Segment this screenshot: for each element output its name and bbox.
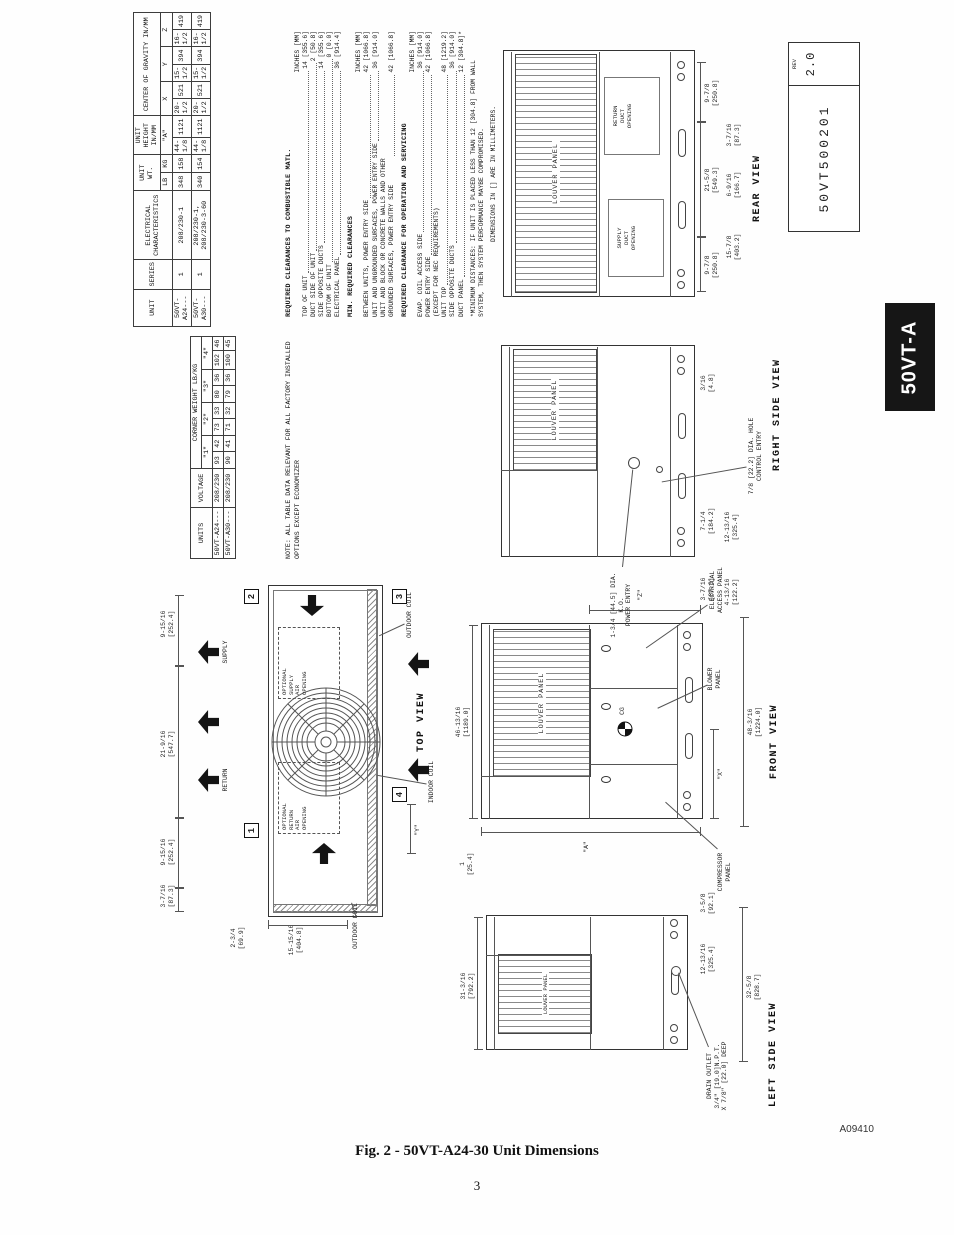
louver-panel-label: LOUVER PANEL (538, 670, 546, 737)
louver-panel: LOUVER PANEL (513, 349, 597, 471)
clearance-item: (EXCEPT FOR NEC REQUIREMENTS) (433, 31, 441, 317)
control-entry-hole (656, 466, 663, 473)
return-label: RETURN (222, 754, 230, 806)
dimension-label: 15-7/8 [403.2] (726, 225, 741, 269)
dimension-label: 21-5/8 [549.3] (704, 157, 719, 203)
top-cap-line (494, 917, 495, 1050)
mounting-hole (677, 355, 685, 363)
cell: 340 (191, 173, 210, 191)
col-a: "A" (161, 116, 172, 155)
dimension-a-label: "A" (583, 837, 591, 857)
cell: 50VT-A30--- (224, 508, 235, 559)
dimension-label: 6-9/16 [166.7] (726, 163, 741, 207)
title-block: 50VT500201 REV 2.0 (788, 42, 860, 232)
indoor-coil-label: INDOOR COIL (428, 750, 436, 814)
col-corner-weight: CORNER WEIGHT LB/KG (191, 337, 202, 469)
dot-leader (447, 75, 448, 285)
clearance-item: BOTTOM OF UNIT0 [0.0] (326, 31, 334, 317)
mounting-slot (685, 677, 693, 703)
dimension-label: 15-15/16 [404.8] (288, 914, 303, 966)
mounting-slot (678, 201, 686, 229)
clearance-item: UNIT AND BLOCK OR CONCRETE WALLS AND OTH… (380, 31, 396, 317)
panel-seam (486, 955, 590, 956)
louver-panel-label: LOUVER PANEL (552, 140, 560, 207)
col-c3: "3" (202, 370, 213, 403)
cell: 79 (224, 386, 235, 403)
louver-panel: LOUVER PANEL (515, 54, 597, 293)
airflow-arrow (198, 710, 219, 734)
dot-leader (316, 63, 317, 251)
outdoor-coil-hatch (273, 904, 378, 913)
cell: 71 (224, 419, 235, 436)
mounting-slot (685, 733, 693, 759)
view-title: RIGHT SIDE VIEW (772, 358, 783, 471)
cell: 158 (172, 155, 191, 173)
dimension-line (743, 617, 744, 827)
dimension-label: 7-1/4 [184.2] (700, 501, 715, 541)
mounting-hole (677, 269, 685, 277)
panel-latch (601, 645, 611, 652)
cell: 80 (213, 386, 224, 403)
dimension-line (178, 818, 179, 888)
cell: 46 (213, 337, 224, 351)
col-series: SERIES (134, 260, 173, 289)
mounting-hole (670, 1024, 678, 1032)
cell: 1 (191, 260, 210, 289)
mounting-hole (677, 281, 685, 289)
cell: 45 (224, 337, 235, 351)
col-lb: LB (161, 173, 172, 191)
mounting-hole (670, 919, 678, 927)
dimension-line (178, 888, 179, 912)
dot-leader (370, 75, 371, 198)
cell: 521 (191, 82, 210, 99)
dimension-line (700, 237, 701, 292)
cell: 208/230-1, 208/230-3-60 (191, 191, 210, 260)
power-entry-knockout (628, 457, 640, 469)
table-note: NOTE: ALL TABLE DATA RELEVANT FOR ALL FA… (285, 329, 302, 559)
return-duct-opening: RETURN DUCT OPENING (604, 77, 660, 155)
cell: 36 (213, 370, 224, 387)
col-x: X (161, 82, 172, 117)
louver-panel: LOUVER PANEL (498, 954, 592, 1034)
panel-seam (589, 688, 677, 689)
cell: 20-1/2 (191, 99, 210, 116)
dimension-label: 2-3/4 [69.9] (230, 918, 245, 958)
units-header: INCHES [MM] (409, 31, 417, 317)
dimension-label: 12-13/16 [325.4] (724, 501, 739, 553)
cell: 15-1/2 (172, 64, 191, 81)
clearance-item: UNIT TOP48 [1219.2] (441, 31, 449, 317)
rev-label: REV (791, 59, 798, 69)
dimension-line (178, 595, 179, 666)
col-unit-wt: UNIT WT. (134, 155, 161, 191)
clearance-item: UNIT AND UNGROUNDED SURFACES, POWER ENTR… (372, 31, 380, 317)
dimension-label: 12-13/16 [325.4] (700, 933, 715, 985)
corner-marker-4: 4 (392, 787, 407, 802)
col-unit: UNIT (134, 289, 173, 326)
rotated-drawing-sheet: UNIT SERIES ELECTRICAL CHARACTERISTICS U… (30, 12, 920, 1112)
cell: 16-1/2 (172, 30, 191, 47)
page-number: 3 (0, 1178, 954, 1194)
col-c1: "1" (202, 436, 213, 469)
cell: 42 (213, 436, 224, 453)
dimension-line (410, 804, 411, 854)
units-header: INCHES [MM] (355, 31, 363, 317)
view-title: REAR VIEW (752, 154, 763, 222)
cell: 208/230 (213, 469, 224, 508)
table-row: 50VT-A24--- 208/230 93 42 73 33 80 36 10… (213, 337, 224, 559)
col-kg: KG (161, 155, 172, 173)
leader-line (377, 775, 426, 785)
revision-cell: REV 2.0 (789, 43, 859, 86)
cell: 33 (213, 403, 224, 420)
clearance-item: POWER ENTRY SIDE42 [1066.8] (425, 31, 433, 317)
power-entry-label: 1-3/4 [44.5] DIA. K.O. POWER ENTRY (610, 567, 633, 643)
cell: 73 (213, 419, 224, 436)
clearance-item: SIDE OPPOSITE DUCTS14 [355.6] (318, 31, 326, 317)
cell: 44-1/8 (191, 137, 210, 154)
mounting-hole (677, 539, 685, 547)
corner-marker-3: 3 (392, 589, 407, 604)
mounting-hole (683, 791, 691, 799)
dimension-line (268, 925, 348, 926)
dot-leader (378, 71, 379, 141)
airflow-arrow-supply (198, 640, 219, 664)
clearance-item: TOP OF UNIT14 [355.6] (302, 31, 310, 317)
dimension-label: 9-7/8 [250.8] (704, 245, 719, 285)
view-title: LEFT SIDE VIEW (768, 1002, 779, 1107)
mounting-hole (677, 61, 685, 69)
dot-leader (332, 59, 333, 262)
drawing-sheet: UNIT SERIES ELECTRICAL CHARACTERISTICS U… (30, 12, 920, 1112)
panel-latch (601, 703, 611, 710)
dot-leader (308, 71, 309, 274)
mounting-hole (670, 931, 678, 939)
col-c2: "2" (202, 403, 213, 436)
cell: 44-1/8 (172, 137, 191, 154)
cell: 93 (213, 452, 224, 469)
col-z: Z (161, 13, 172, 48)
dimension-label: 4-13/16 [122.2] (724, 569, 739, 615)
corner-weight-table: UNITS VOLTAGE CORNER WEIGHT LB/KG "1" "2… (190, 336, 236, 559)
cell: 154 (191, 155, 210, 173)
dot-leader (456, 71, 457, 243)
mounting-hole (683, 643, 691, 651)
dimension-line (742, 907, 743, 1062)
dimension-label: 3-5/8 [92.1] (700, 883, 715, 923)
mounting-hole (683, 631, 691, 639)
center-of-gravity-symbol (617, 721, 633, 737)
cell: 100 (224, 351, 235, 370)
cell: 50VT-A30--- (191, 289, 210, 326)
left-side-view: 31-3/16 [792.2] LOUVER PANEL 12-13/16 [3… (460, 872, 790, 1107)
louver-panel: LOUVER PANEL (493, 629, 591, 777)
cell: 1121 (172, 116, 191, 137)
rear-view: LOUVER PANEL SUPPLY DUCT OPENING RETURN … (460, 37, 780, 307)
dimension-y-label: "Y" (414, 810, 422, 850)
cell: 419 (191, 13, 210, 30)
cg-label: CG (619, 703, 627, 719)
col-y: Y (161, 47, 172, 82)
cell: 521 (172, 82, 191, 99)
control-entry-label: 7/8 [22.2] DIA. HOLE CONTROL ENTRY (748, 413, 763, 499)
airflow-arrow-return (198, 768, 219, 792)
cell: 90 (224, 452, 235, 469)
panel-seam (597, 347, 598, 557)
cell: 208/230-1 (172, 191, 191, 260)
dimension-label: 46-13/16 [1189.0] (455, 692, 470, 752)
dot-leader (423, 71, 424, 232)
cell: 36 (224, 370, 235, 387)
figure-caption: Fig. 2 - 50VT-A24-30 Unit Dimensions (0, 1143, 954, 1160)
clearance-item: BETWEEN UNITS, POWER ENTRY SIDE42 [1066.… (363, 31, 371, 317)
image-code: A09410 (840, 1124, 874, 1135)
cell: 50VT-A24--- (172, 289, 191, 326)
louver-panel-label: LOUVER PANEL (551, 377, 559, 444)
clearance-title: REQUIRED CLEARANCES TO COMBUSTIBLE MATL. (285, 31, 294, 317)
panel-seam (501, 470, 597, 471)
units-header: INCHES [MM] (294, 31, 302, 317)
top-cap-line (511, 52, 512, 297)
panel-seam (590, 917, 591, 1050)
cell: 348 (172, 173, 191, 191)
clearance-item: ELECTRICAL PANEL36 [914.4] (334, 31, 342, 317)
airflow-arrow (408, 758, 429, 782)
mounting-slot (678, 129, 686, 157)
col-cog: CENTER OF GRAVITY IN/MM (134, 13, 161, 117)
dimension-line (700, 122, 701, 237)
dimension-line (713, 729, 714, 819)
supply-duct-opening: SUPPLY DUCT OPENING (608, 199, 664, 277)
corner-marker-2: 2 (244, 589, 259, 604)
mounting-hole (677, 73, 685, 81)
dot-leader (394, 75, 395, 157)
louver-panel-label: LOUVER PANEL (542, 971, 549, 1017)
dimension-label: 32-5/8 [828.7] (746, 965, 761, 1009)
mounting-hole (677, 367, 685, 375)
col-electrical: ELECTRICAL CHARACTERISTICS (134, 191, 173, 260)
clearance-title: MIN. REQUIRED CLEARANCES (347, 31, 356, 317)
view-title: TOP VIEW (416, 692, 427, 752)
section-tab: 50VT-A (885, 303, 935, 411)
dimension-line (472, 625, 473, 819)
panel-seam (481, 776, 589, 777)
view-title: FRONT VIEW (769, 704, 780, 779)
airflow-arrow (408, 652, 429, 676)
base-seam (663, 917, 664, 1050)
top-cap-line (489, 625, 490, 819)
cell: 102 (213, 351, 224, 370)
dimension-x-label: "X" (717, 759, 725, 789)
dimension-label: 3-7/16 [87.3] (160, 876, 175, 916)
dimension-label: 9-15/16 [252.4] (160, 600, 175, 648)
dimension-label: 3/16 [4.8] (700, 365, 715, 401)
dimension-line (700, 62, 701, 122)
drawing-number: 50VT500201 (789, 86, 859, 231)
mounting-hole (677, 527, 685, 535)
table-row: 50VT-A30--- 1 208/230-1, 208/230-3-60 34… (191, 13, 210, 327)
clearance-item: DUCT SIDE OF UNIT2 [50.8] (310, 31, 318, 317)
condenser-fan (270, 686, 382, 798)
blower-panel-label: BLOWER PANEL (707, 657, 722, 701)
cell: 394 (191, 47, 210, 64)
dimension-label: 31-3/16 [792.2] (460, 960, 475, 1012)
cell: 50VT-A24--- (213, 508, 224, 559)
mounting-slot (678, 413, 686, 439)
mounting-hole (670, 1036, 678, 1044)
dimension-line (481, 832, 701, 833)
cell: 15-1/2 (191, 64, 210, 81)
panel-latch (601, 776, 611, 783)
table-row: 50VT-A24--- 1 208/230-1 348 158 44-1/8 1… (172, 13, 191, 327)
base-seam (670, 347, 671, 557)
table-row: UNITS VOLTAGE CORNER WEIGHT LB/KG (191, 337, 202, 559)
panel-seam (599, 52, 600, 297)
main-table: UNIT SERIES ELECTRICAL CHARACTERISTICS U… (133, 12, 211, 327)
top-view: 3-7/16 [87.3] 9-15/16 [252.4] 21-9/16 [5… (160, 557, 460, 942)
cell: 208/230 (224, 469, 235, 508)
dot-leader (431, 75, 432, 255)
cell: 1121 (191, 116, 210, 137)
table-row: UNIT SERIES ELECTRICAL CHARACTERISTICS U… (134, 13, 161, 327)
dimension-line (477, 917, 478, 1050)
outdoor-coil-label: OUTDOOR COIL (406, 580, 414, 650)
section-tab-label: 50VT-A (899, 320, 922, 394)
dimension-label: 9-15/16 [252.4] (160, 828, 175, 876)
cell: 41 (224, 436, 235, 453)
drain-outlet-label: DRAIN OUTLET 3/4" [19.0]N.P.T. X 7/8" [2… (706, 1041, 729, 1111)
unit-spec-table: UNIT SERIES ELECTRICAL CHARACTERISTICS U… (133, 12, 211, 327)
panel-seam (589, 625, 590, 819)
col-voltage: VOLTAGE (191, 469, 213, 508)
dimension-label: 3-7/16 [87.3] (726, 115, 741, 155)
clearance-item: EVAP. COIL ACCESS SIDE36 [914.0] (417, 31, 425, 317)
corner-marker-1: 1 (244, 823, 259, 838)
corner-table: UNITS VOLTAGE CORNER WEIGHT LB/KG "1" "2… (190, 336, 236, 559)
top-cap-line (509, 347, 510, 557)
cell: 419 (172, 13, 191, 30)
base-seam (677, 625, 678, 819)
col-units: UNITS (191, 508, 213, 559)
cell: 394 (172, 47, 191, 64)
base-seam (670, 52, 671, 297)
cell: 16-1/2 (191, 30, 210, 47)
cell: 32 (224, 403, 235, 420)
dot-leader (324, 71, 325, 243)
dot-leader (340, 71, 341, 255)
panel-seam (589, 764, 677, 765)
dimension-label: 48-3/16 [1224.0] (747, 692, 762, 752)
dimension-line (178, 666, 179, 818)
cell: 1 (172, 260, 191, 289)
clearance-item: SIDE OPPOSITE DUCTS36 [914.0] (449, 31, 457, 317)
clearance-title: REQUIRED CLEARANCE FOR OPERATION AND SER… (401, 31, 410, 317)
mounting-hole (683, 803, 691, 811)
dimension-label: 3-7/16 [87.3] (700, 569, 715, 609)
col-c4: "4" (202, 337, 213, 370)
supply-label: SUPPLY (222, 626, 230, 678)
cell: 20-1/2 (172, 99, 191, 116)
dimension-label: 21-9/16 [547.7] (160, 716, 175, 772)
rev-value: 2.0 (804, 52, 818, 77)
right-side-view: LOUVER PANEL 1-3/4 [44.5] DIA. K.O. POWE… (460, 317, 790, 617)
table-row: 50VT-A30--- 208/230 90 41 71 32 79 36 10… (224, 337, 235, 559)
col-height: UNIT HEIGHT IN/MM (134, 116, 161, 155)
dimension-label: 9-7/8 [250.8] (704, 73, 719, 113)
